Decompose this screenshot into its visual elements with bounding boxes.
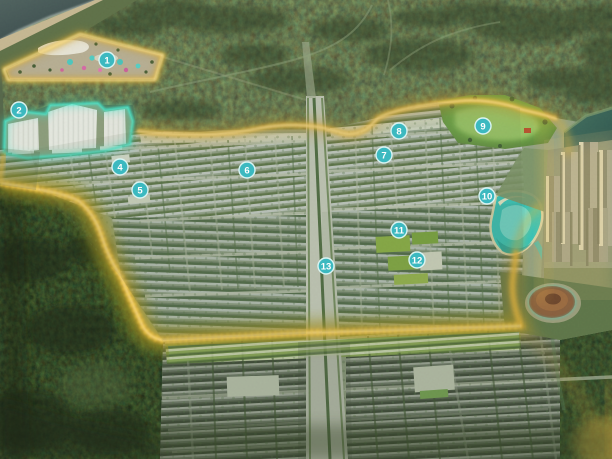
svg-text:7: 7	[381, 151, 386, 162]
svg-text:2: 2	[16, 106, 21, 117]
svg-text:5: 5	[137, 186, 143, 197]
svg-text:10: 10	[482, 192, 493, 203]
svg-text:11: 11	[394, 226, 405, 237]
svg-text:12: 12	[412, 256, 423, 267]
svg-text:13: 13	[321, 262, 332, 273]
svg-text:4: 4	[117, 163, 123, 174]
svg-text:6: 6	[244, 166, 249, 177]
svg-text:8: 8	[396, 127, 401, 138]
svg-text:9: 9	[480, 122, 485, 133]
svg-text:1: 1	[104, 56, 110, 67]
